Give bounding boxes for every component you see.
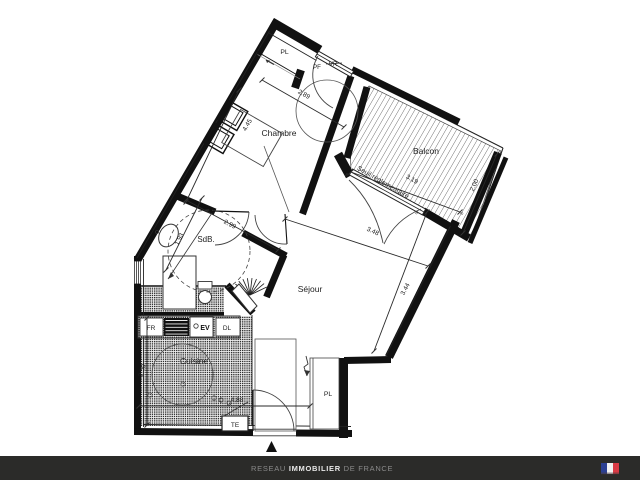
svg-text:TE: TE	[231, 422, 240, 429]
svg-text:EV: EV	[200, 325, 210, 332]
svg-text:Cuisine: Cuisine	[180, 356, 209, 366]
svg-text:SdB.: SdB.	[197, 235, 214, 244]
svg-text:Balcon: Balcon	[413, 146, 439, 156]
svg-text:RESEAU IMMOBILIER DE FRANCE: RESEAU IMMOBILIER DE FRANCE	[251, 464, 393, 473]
svg-text:4.88: 4.88	[231, 397, 244, 404]
svg-text:Chambre: Chambre	[262, 128, 297, 138]
svg-text:FR: FR	[147, 325, 156, 332]
svg-text:PF: PF	[313, 64, 321, 71]
svg-text:Séjour: Séjour	[298, 284, 323, 294]
svg-text:VR: VR	[329, 61, 338, 68]
svg-text:PL: PL	[280, 49, 289, 56]
svg-text:PL: PL	[324, 391, 333, 398]
svg-text:DL: DL	[223, 325, 232, 332]
